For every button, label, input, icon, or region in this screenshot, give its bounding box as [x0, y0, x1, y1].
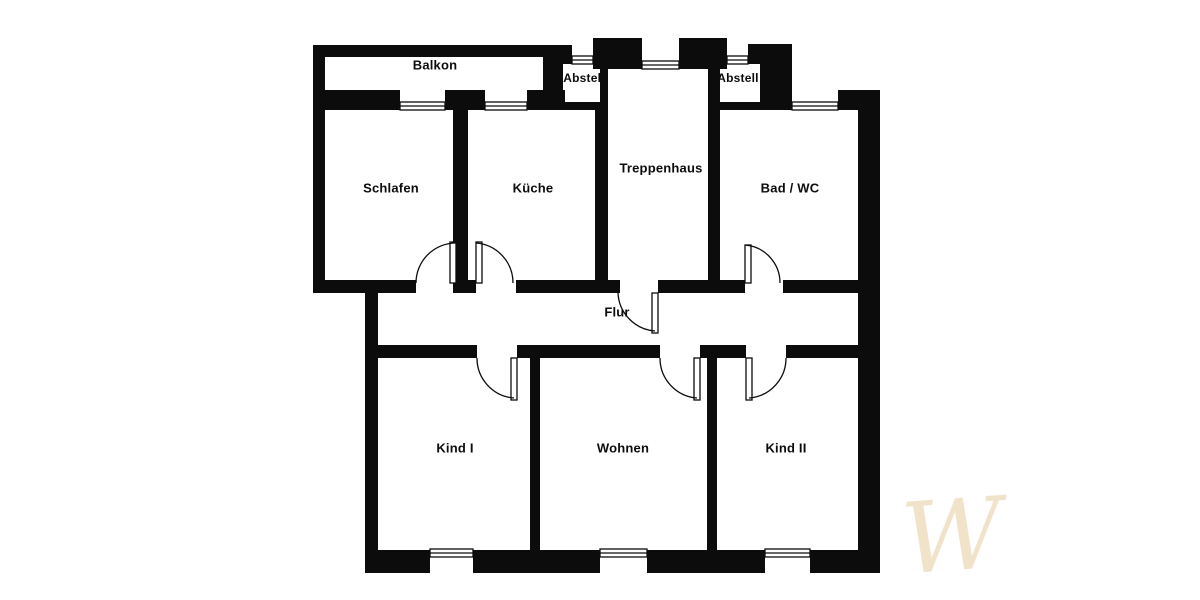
- room-label-abstell-left: Abstell: [563, 71, 604, 85]
- floorplan-canvas: Balkon Abstell Abstell Schlafen Küche Tr…: [0, 0, 1200, 600]
- room-label-wohnen: Wohnen: [597, 441, 649, 456]
- window-wohnen: [600, 549, 647, 557]
- window-treppenhaus: [642, 61, 679, 69]
- door-kind2: [746, 358, 786, 400]
- wall-bottom-4: [810, 550, 878, 573]
- wall-treppenhaus-badwc: [708, 69, 720, 293]
- room-label-treppenhaus: Treppenhaus: [619, 161, 702, 176]
- wall-outer-left-bottom: [365, 293, 378, 573]
- window-kind1: [430, 549, 473, 557]
- wall-bottom-1: [365, 550, 430, 573]
- room-label-kueche: Küche: [513, 181, 554, 196]
- window-badwc: [792, 102, 838, 110]
- wall-abstell-right-topblock: [748, 44, 792, 64]
- room-label-abstell-right: Abstell: [717, 71, 758, 85]
- wall-kind1-wohnen: [530, 358, 540, 550]
- wall-flur-top-2: [456, 280, 476, 293]
- wall-flur-top-1: [313, 280, 416, 293]
- wall-facade-1: [325, 90, 400, 110]
- wall-outer-right: [858, 110, 880, 573]
- walls: [313, 38, 880, 573]
- room-label-kind2: Kind II: [765, 441, 806, 456]
- window-kind2: [765, 549, 810, 557]
- wall-flur-bottom-2: [517, 345, 660, 358]
- wall-outer-left-top: [313, 45, 325, 293]
- door-kueche: [476, 242, 513, 283]
- wall-flur-top-5: [783, 280, 858, 293]
- wall-flur-top-3: [516, 280, 620, 293]
- door-kind1: [477, 358, 517, 400]
- wall-abstell-right-sideblock: [760, 64, 792, 110]
- room-label-kind1: Kind I: [436, 441, 473, 456]
- wall-flur-bottom-3: [700, 345, 746, 358]
- wall-wohnen-kind2: [707, 358, 717, 550]
- room-label-balkon: Balkon: [413, 58, 458, 73]
- door-wohnen: [660, 358, 700, 400]
- wall-kueche-treppenhaus: [595, 110, 608, 293]
- wall-bottom-3: [647, 550, 765, 573]
- wall-abstell-left-topcorner: [563, 45, 572, 64]
- window-kueche-balkon: [485, 102, 527, 110]
- wall-top-pillar-right: [679, 38, 727, 69]
- wall-flur-bottom-1: [365, 345, 477, 358]
- floorplan-drawing: [0, 0, 1200, 600]
- wall-facade-3: [527, 90, 565, 110]
- door-badwc: [745, 245, 780, 283]
- wall-flur-top-4: [658, 280, 745, 293]
- window-schlafen-balkon: [400, 102, 445, 110]
- room-label-flur: Flur: [604, 305, 629, 320]
- room-label-schlafen: Schlafen: [363, 181, 419, 196]
- window-abstell-left: [572, 56, 593, 64]
- wall-balkon-top: [313, 45, 563, 57]
- room-label-badwc: Bad / WC: [761, 181, 820, 196]
- window-abstell-right: [727, 56, 748, 64]
- wall-bottom-2: [473, 550, 600, 573]
- watermark-logo: W: [899, 485, 1006, 590]
- door-schlafen: [416, 242, 456, 283]
- wall-flur-bottom-4: [786, 345, 860, 358]
- wall-badwc-topcorner: [838, 90, 880, 110]
- wall-facade-2: [445, 90, 485, 110]
